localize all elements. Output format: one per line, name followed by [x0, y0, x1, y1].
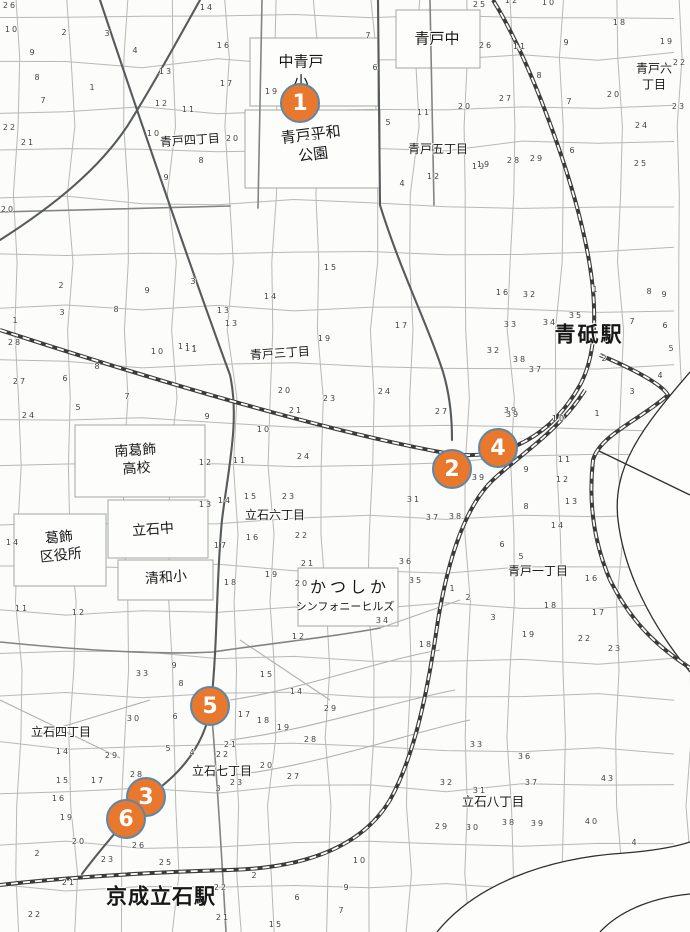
marker-1[interactable]: 1 [280, 83, 320, 123]
block-minami-katsushika-high [75, 425, 205, 497]
marker-4[interactable]: 4 [478, 428, 518, 468]
block-symphony-hills [298, 568, 398, 626]
block-tateishi-junior-high [108, 500, 208, 558]
block-ward-office [14, 514, 106, 586]
map-vector-layer [0, 0, 690, 932]
marker-6[interactable]: 6 [106, 799, 146, 839]
block-aoto-junior-high [396, 10, 480, 68]
map-canvas[interactable]: 2610231494168131771121122211089207619511… [0, 0, 690, 932]
marker-5[interactable]: 5 [190, 686, 230, 726]
block-aoto-heiwa-park [245, 110, 380, 188]
block-seiwa-elementary [118, 560, 213, 600]
marker-2[interactable]: 2 [432, 449, 472, 489]
